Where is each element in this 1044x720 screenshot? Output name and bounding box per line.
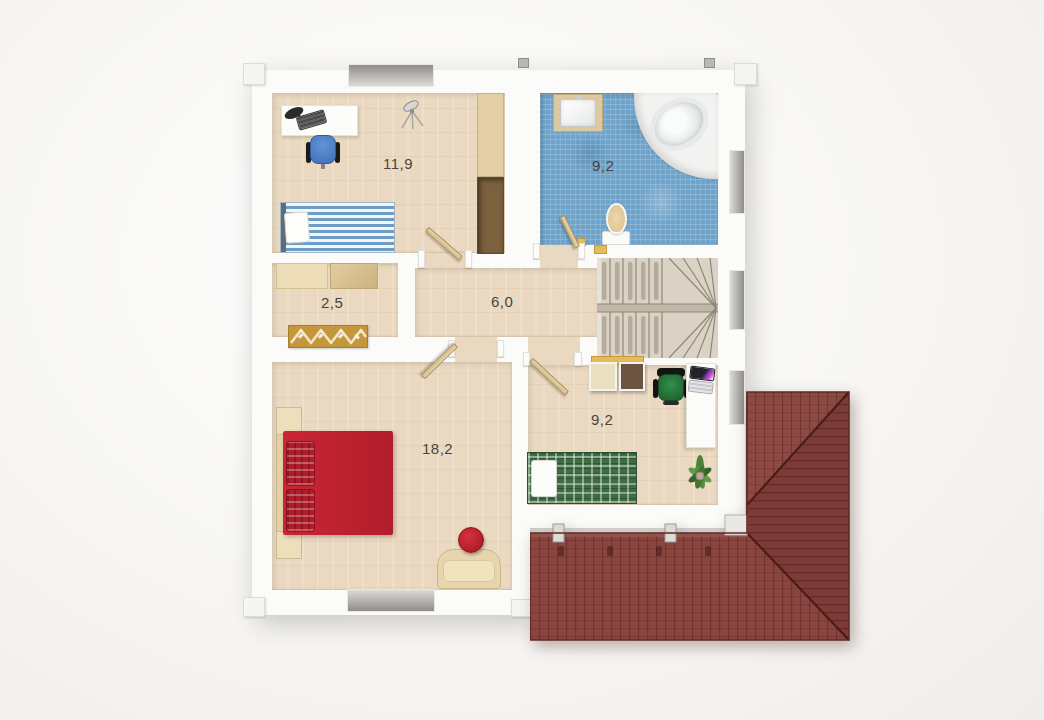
door-jamb — [497, 340, 504, 357]
floor-plan-canvas: 11,9 9,2 2,5 6,0 18,2 9,2 — [0, 0, 1044, 720]
room-area-label: 2,5 — [321, 294, 343, 311]
storage-box-light — [589, 362, 617, 391]
wall-accent — [594, 245, 607, 254]
wardrobe-open-shelf — [477, 177, 504, 254]
window — [729, 150, 745, 214]
window — [348, 64, 434, 87]
washbasin — [560, 99, 596, 127]
bench — [437, 549, 501, 589]
chair-seat — [310, 135, 336, 164]
door-opening — [540, 245, 578, 268]
shelf-unit-dark — [330, 263, 378, 289]
nightstand — [276, 531, 302, 559]
wardrobe — [477, 93, 504, 177]
corner-pilaster — [243, 63, 265, 85]
toilet — [606, 203, 627, 234]
standing-fan-icon — [398, 96, 428, 132]
door-jamb — [574, 352, 582, 366]
room-area-label: 9,2 — [592, 157, 614, 174]
roof-vent-icon — [518, 58, 529, 68]
corner-pilaster — [511, 599, 531, 617]
shelf-unit-light — [276, 263, 328, 289]
room-area-label: 11,9 — [383, 155, 413, 172]
window — [347, 589, 435, 612]
pillow-plaid — [286, 489, 315, 532]
window — [729, 270, 745, 330]
door-jamb — [533, 243, 540, 259]
pillow-plaid — [286, 441, 315, 486]
room-area-label: 9,2 — [591, 411, 613, 428]
door-opening — [455, 337, 497, 362]
pillow — [284, 211, 310, 244]
office-chair-blue — [306, 133, 340, 169]
shoe-rack — [288, 325, 368, 348]
faucet-icon — [575, 95, 582, 100]
corner-pilaster — [734, 63, 757, 85]
door-jamb — [465, 250, 472, 268]
corner-pilaster — [243, 597, 265, 617]
door-jamb — [523, 352, 530, 366]
hipped-tile-roof — [530, 388, 852, 644]
room-area-label: 6,0 — [491, 293, 513, 310]
room-area-label: 18,2 — [422, 440, 453, 457]
ottoman-red — [458, 527, 484, 553]
storage-box-dark — [619, 362, 645, 391]
door-jamb — [418, 250, 425, 268]
bench-cushion — [443, 560, 495, 582]
roof-vent-icon — [704, 58, 715, 68]
winder-staircase — [597, 258, 718, 358]
chair-stem — [321, 164, 325, 169]
